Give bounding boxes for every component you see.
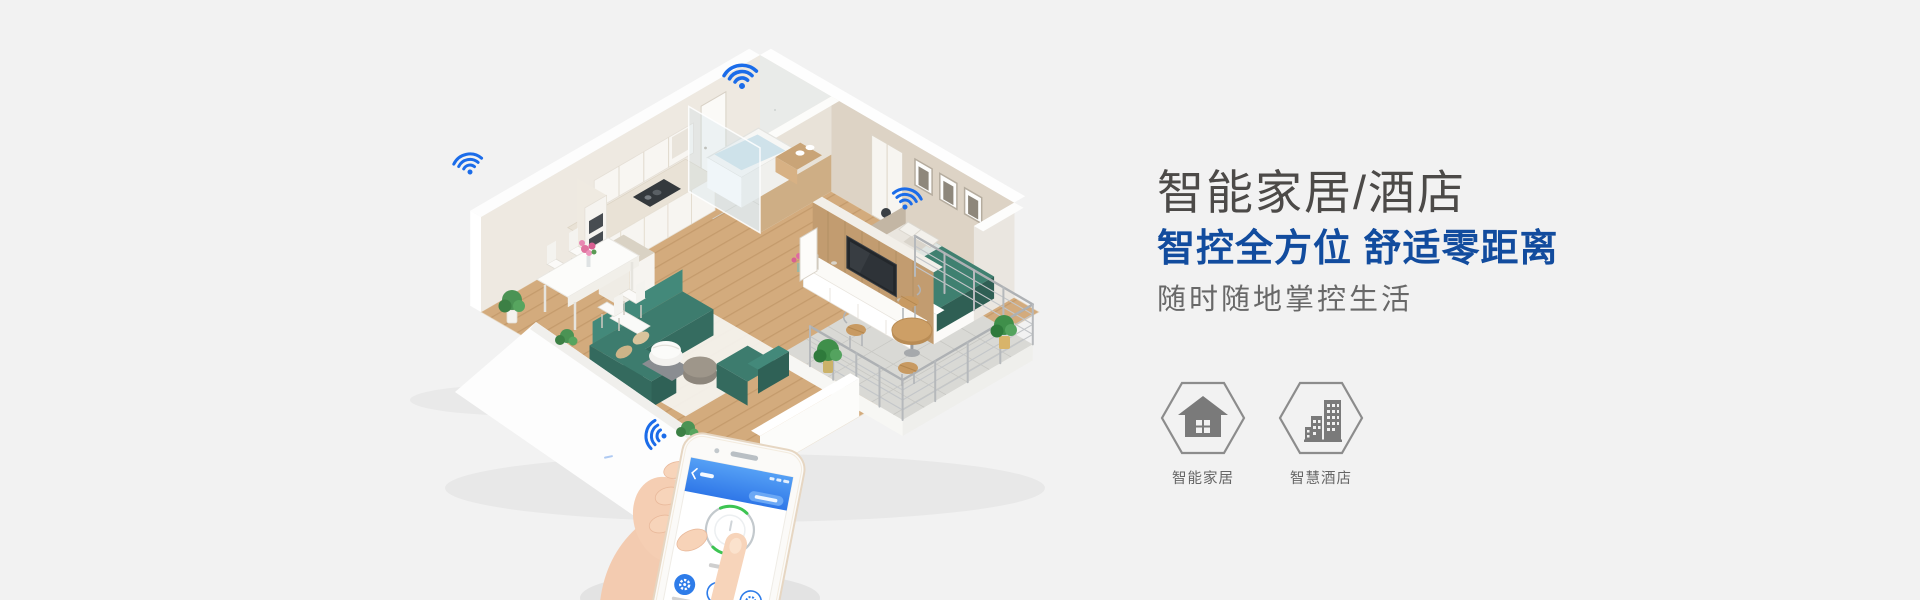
feature-label: 智能家居 bbox=[1157, 467, 1249, 488]
feature-label: 智慧酒店 bbox=[1275, 467, 1367, 488]
hero-subtitle: 智控全方位 舒适零距离 bbox=[1157, 230, 1797, 270]
hero-content: 智能家居/酒店 智控全方位 舒适零距离 随时随地掌控生活 智能家居 bbox=[1157, 168, 1797, 488]
feature-smart-home[interactable]: 智能家居 bbox=[1157, 380, 1249, 488]
hero-tagline: 随时随地掌控生活 bbox=[1157, 285, 1797, 315]
wifi-icon bbox=[452, 151, 484, 177]
hero-banner: 智能家居/酒店 智控全方位 舒适零距离 随时随地掌控生活 智能家居 bbox=[0, 0, 1920, 600]
apartment-illustration bbox=[0, 0, 1100, 600]
pouf bbox=[683, 357, 717, 385]
feature-smart-hotel[interactable]: 智慧酒店 bbox=[1275, 380, 1367, 488]
feature-list: 智能家居 bbox=[1157, 380, 1797, 488]
hotel-hexagon-icon bbox=[1278, 380, 1364, 456]
hotel-building-icon bbox=[1304, 400, 1342, 442]
open-door bbox=[800, 228, 817, 281]
home-icon bbox=[1178, 396, 1228, 437]
page-title: 智能家居/酒店 bbox=[1157, 168, 1797, 217]
home-hexagon-icon bbox=[1160, 380, 1246, 456]
